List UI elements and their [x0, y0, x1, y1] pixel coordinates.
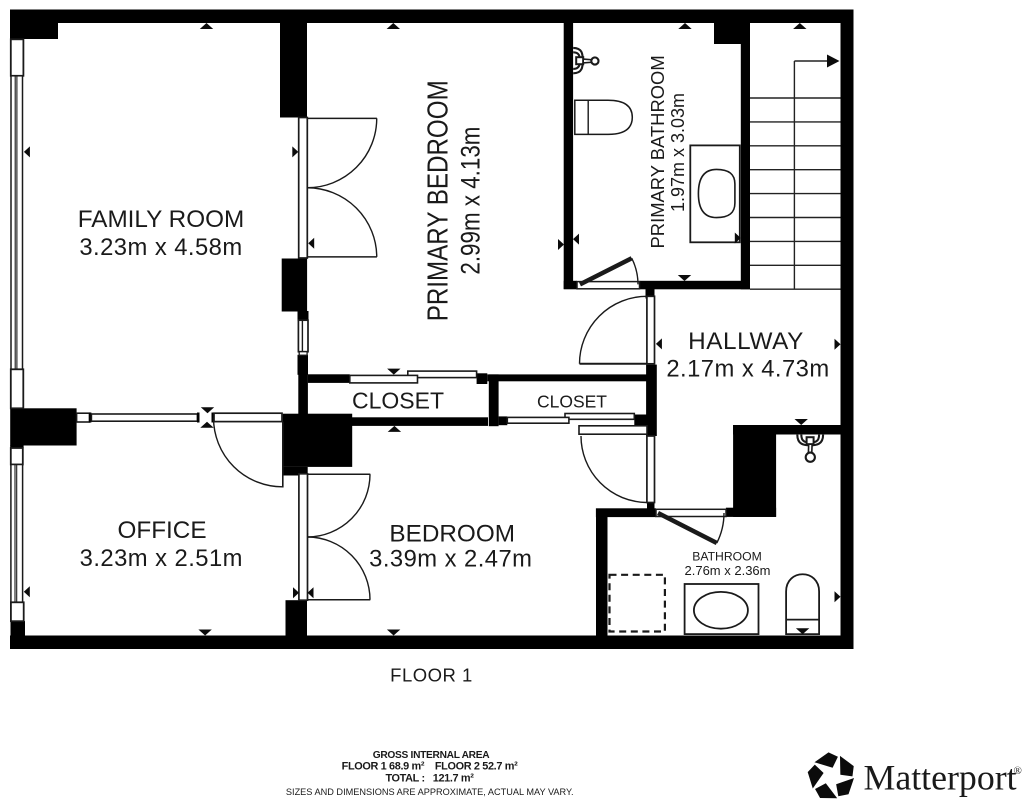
svg-text:FLOOR 1 68.9 m² FLOOR 2 52.: FLOOR 1 68.9 m² FLOOR 2 52.7 m²: [342, 760, 518, 772]
svg-text:CLOSET: CLOSET: [352, 388, 444, 414]
svg-text:FAMILY ROOM: FAMILY ROOM: [78, 206, 245, 233]
svg-text:PRIMARY BEDROOM: PRIMARY BEDROOM: [422, 80, 454, 321]
svg-text:SIZES AND DIMENSIONS ARE APPRO: SIZES AND DIMENSIONS ARE APPROXIMATE, AC…: [286, 787, 574, 797]
svg-text:®: ®: [1014, 765, 1022, 777]
svg-text:PRIMARY BATHROOM: PRIMARY BATHROOM: [647, 55, 668, 248]
svg-text:3.23m x 4.58m: 3.23m x 4.58m: [79, 234, 242, 261]
svg-text:FLOOR 1: FLOOR 1: [390, 665, 473, 686]
svg-text:GROSS INTERNAL AREA: GROSS INTERNAL AREA: [373, 750, 491, 761]
svg-text:OFFICE: OFFICE: [117, 517, 206, 544]
svg-text:CLOSET: CLOSET: [537, 392, 607, 412]
svg-text:2.17m x 4.73m: 2.17m x 4.73m: [666, 356, 829, 383]
svg-text:BATHROOM: BATHROOM: [692, 550, 762, 564]
svg-text:3.39m x 2.47m: 3.39m x 2.47m: [369, 546, 532, 573]
svg-text:BEDROOM: BEDROOM: [389, 520, 515, 547]
svg-text:TOTAL : 121.7 m²: TOTAL : 121.7 m²: [385, 773, 474, 785]
svg-text:HALLWAY: HALLWAY: [688, 328, 804, 355]
svg-text:1.97m x 3.03m: 1.97m x 3.03m: [668, 93, 688, 212]
svg-text:Matterport: Matterport: [864, 758, 1017, 798]
svg-text:2.99m x 4.13m: 2.99m x 4.13m: [457, 127, 486, 275]
svg-text:2.76m x 2.36m: 2.76m x 2.36m: [685, 563, 771, 578]
svg-text:3.23m x 2.51m: 3.23m x 2.51m: [80, 545, 243, 572]
